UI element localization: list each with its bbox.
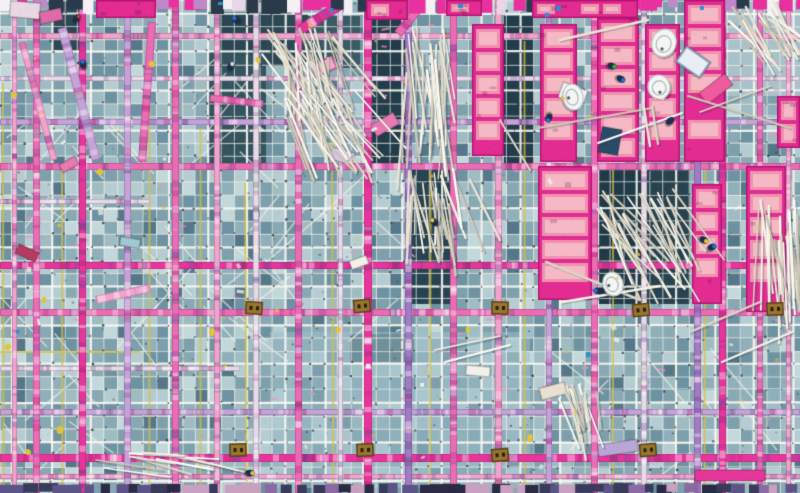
photo-canvas [0, 0, 800, 493]
construction-site-aerial-photo: Aerial top-down photograph of a construc… [0, 0, 800, 493]
